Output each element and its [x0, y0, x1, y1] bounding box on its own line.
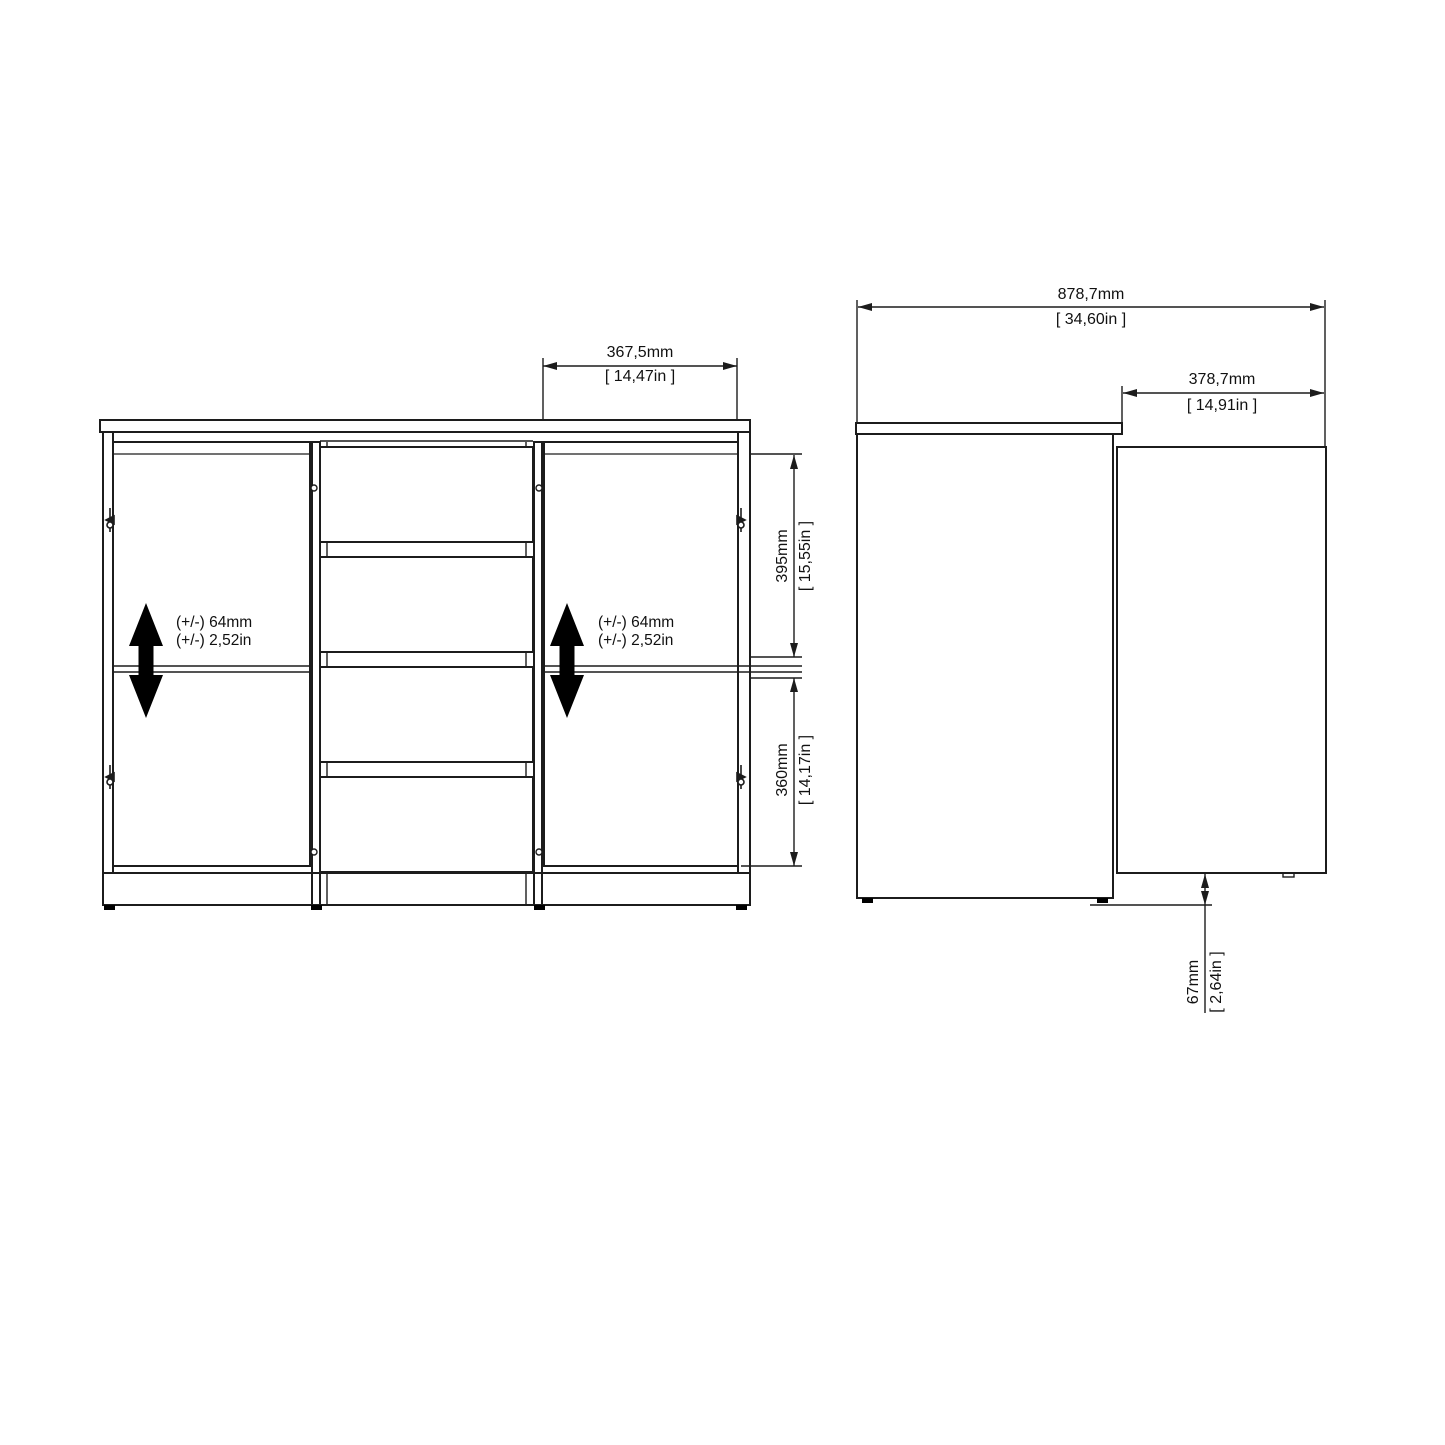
- foot: [736, 905, 747, 910]
- hinge-icon: [738, 522, 744, 528]
- upper-opening-inch-label: [ 15,55in ]: [797, 521, 815, 591]
- door-foot-glide: [1283, 873, 1294, 877]
- arrowhead: [1201, 891, 1209, 905]
- foot: [1097, 898, 1108, 903]
- arrowhead: [1201, 874, 1209, 888]
- lower-opening-inch-label: [ 14,17in ]: [797, 735, 815, 805]
- total-depth-mm-label: 878,7mm: [1058, 286, 1125, 304]
- door-projection-mm-label: 378,7mm: [1189, 371, 1256, 389]
- arrowhead: [790, 852, 798, 866]
- arrowhead: [790, 455, 798, 469]
- technical-drawing-page: 367,5mm [ 14,47in ] 395mm [ 15,55in ] 36…: [0, 0, 1445, 1445]
- hinge-icon: [738, 779, 744, 785]
- front-divider-left: [312, 442, 320, 905]
- shelf-adjust-mm: (+/-) 64mm: [598, 614, 674, 632]
- side-body-outline: [857, 434, 1113, 898]
- cam-icon: [311, 849, 317, 855]
- door-width-mm-label: 367,5mm: [607, 344, 674, 362]
- arrowhead: [858, 303, 872, 311]
- arrowhead: [723, 362, 737, 370]
- front-divider-right: [534, 442, 542, 905]
- foot: [311, 905, 322, 910]
- arrowhead: [790, 643, 798, 657]
- side-open-door: [1117, 447, 1326, 873]
- hinge-icon: [107, 779, 113, 785]
- cam-icon: [311, 485, 317, 491]
- shelf-adjust-inch: (+/-) 2,52in: [598, 632, 674, 650]
- arrowhead: [790, 678, 798, 692]
- shelf-adjust-note-left: (+/-) 64mm (+/-) 2,52in: [176, 614, 252, 650]
- cam-icon: [536, 485, 542, 491]
- extension-line: [738, 666, 802, 672]
- lower-opening-mm-label: 360mm: [774, 743, 792, 796]
- shelf-adjust-mm: (+/-) 64mm: [176, 614, 252, 632]
- drawer-1: [320, 447, 533, 542]
- door-width-inch-label: [ 14,47in ]: [605, 368, 675, 386]
- floor-clearance-inch-label: [ 2,64in ]: [1208, 951, 1226, 1012]
- total-depth-inch-label: [ 34,60in ]: [1056, 311, 1126, 329]
- drawer-4: [320, 777, 533, 872]
- drawing-canvas: [0, 0, 1445, 1445]
- foot: [862, 898, 873, 903]
- side-top-panel: [856, 423, 1122, 434]
- foot: [534, 905, 545, 910]
- floor-clearance-mm-label: 67mm: [1185, 960, 1203, 1004]
- drawer-2: [320, 557, 533, 652]
- arrowhead: [543, 362, 557, 370]
- foot: [104, 905, 115, 910]
- front-top-panel: [100, 420, 750, 432]
- shelf-adjust-note-right: (+/-) 64mm (+/-) 2,52in: [598, 614, 674, 650]
- upper-opening-mm-label: 395mm: [774, 529, 792, 582]
- drawer-3: [320, 667, 533, 762]
- shelf-adjust-inch: (+/-) 2,52in: [176, 632, 252, 650]
- door-projection-inch-label: [ 14,91in ]: [1187, 397, 1257, 415]
- dim-upper-opening: [738, 454, 802, 672]
- arrowhead: [1123, 389, 1137, 397]
- arrowhead: [1310, 303, 1324, 311]
- cam-icon: [536, 849, 542, 855]
- arrowhead: [1310, 389, 1324, 397]
- hinge-icon: [107, 522, 113, 528]
